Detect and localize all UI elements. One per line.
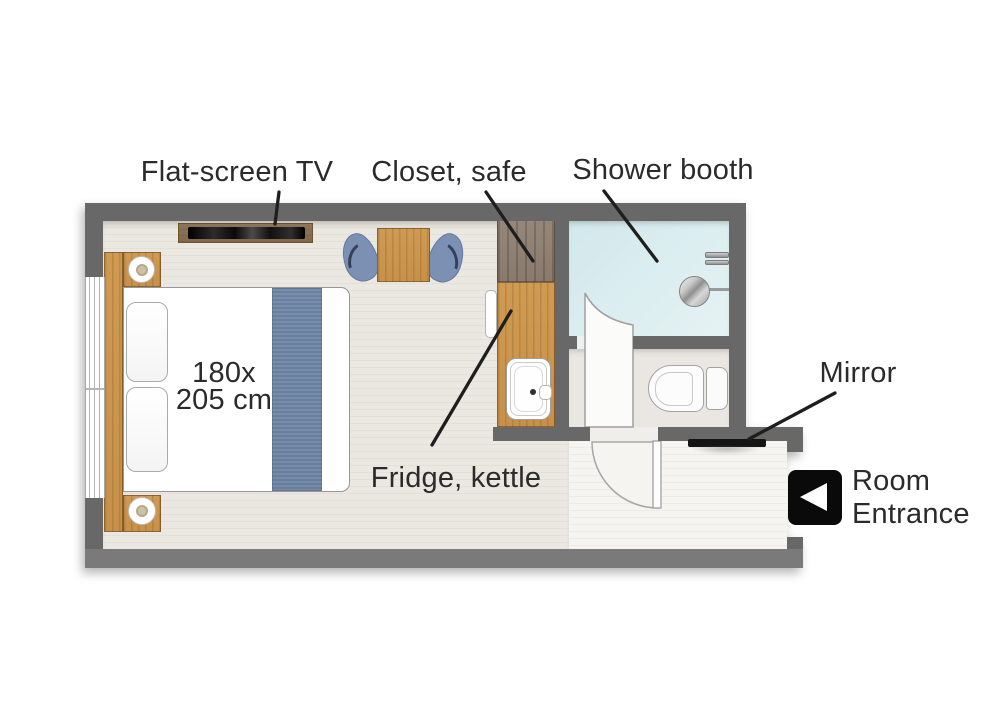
bathroom-door-swing (592, 442, 658, 508)
floor-plan (0, 0, 1000, 706)
bathroom-door-leaf (653, 441, 661, 508)
window (85, 277, 105, 498)
floor-plan-page: { "labels": { "flat_screen_tv": "Flat-sc… (0, 0, 1000, 706)
label-bed-size: 180x 205 cm (176, 360, 272, 414)
mirror (688, 439, 766, 447)
shower-door (585, 293, 633, 427)
label-flat-screen-tv: Flat-screen TV (141, 156, 333, 189)
label-shower-booth: Shower booth (572, 154, 753, 187)
wall-entry-bottom (787, 537, 803, 549)
room-entrance-arrow-icon (788, 470, 842, 525)
label-room-entrance: Room Entrance (852, 465, 970, 531)
door-swings (0, 0, 1000, 706)
wall-entry-top (787, 441, 803, 452)
wall-left-top (85, 221, 103, 277)
left-arrow-icon (800, 483, 827, 511)
wall-top (85, 203, 746, 221)
window-mullion (86, 388, 104, 390)
wall-shower-divider-right (633, 336, 729, 349)
wall-mid-vertical (555, 221, 569, 427)
wall-bottom (85, 549, 803, 568)
mirror-reflection (690, 447, 762, 455)
label-closet-safe: Closet, safe (371, 156, 527, 189)
wall-shower-divider-left (569, 336, 577, 349)
wall-corridor-left (493, 427, 590, 441)
wall-bath-right (729, 221, 746, 427)
label-mirror: Mirror (820, 357, 897, 390)
label-fridge-kettle: Fridge, kettle (371, 462, 541, 495)
